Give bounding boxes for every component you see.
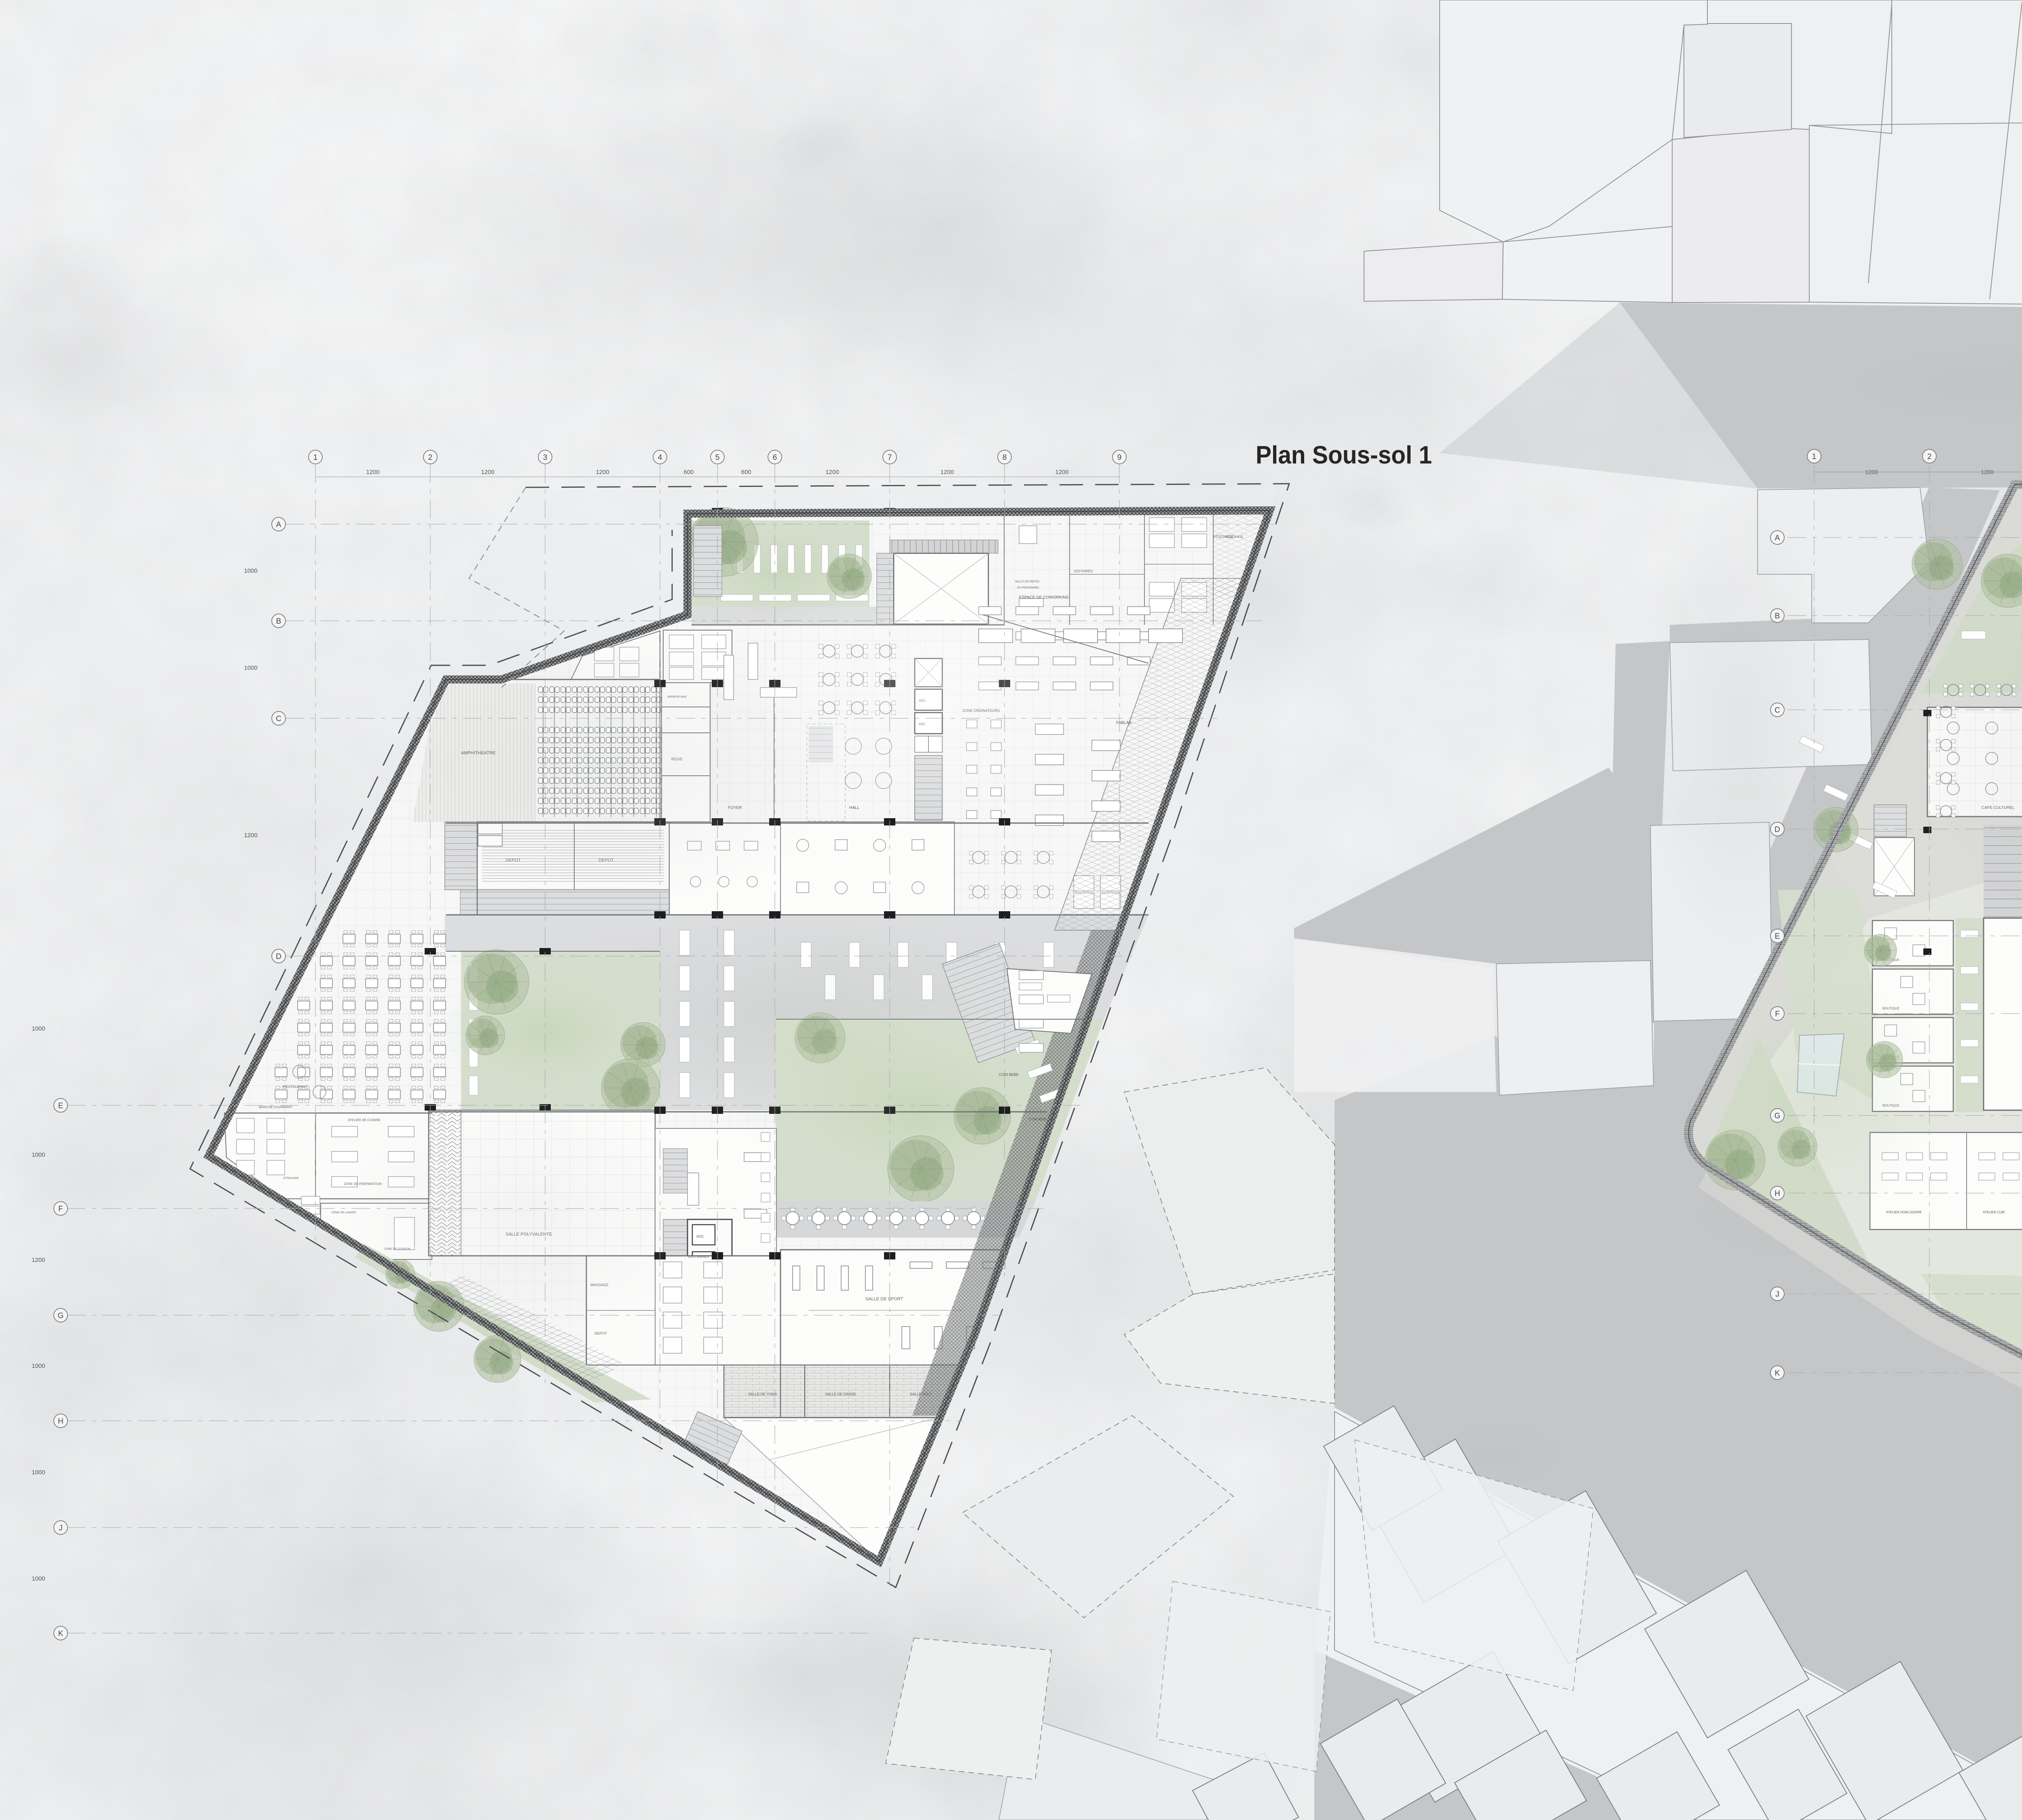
- svg-text:1200: 1200: [366, 469, 379, 476]
- svg-text:6: 6: [773, 453, 777, 462]
- svg-text:4: 4: [658, 453, 662, 462]
- svg-text:Plan Sous-sol 1: Plan Sous-sol 1: [1256, 441, 1432, 469]
- svg-text:9: 9: [1117, 453, 1122, 462]
- svg-text:VESTIAIRES: VESTIAIRES: [1074, 569, 1093, 573]
- svg-text:E: E: [1775, 932, 1780, 941]
- svg-text:A: A: [276, 521, 281, 529]
- svg-text:1: 1: [1812, 453, 1817, 461]
- svg-text:C: C: [276, 715, 281, 723]
- svg-text:SALLE DE YOGA: SALLE DE YOGA: [748, 1392, 777, 1396]
- svg-text:H: H: [1775, 1189, 1780, 1198]
- svg-text:C: C: [1775, 706, 1780, 715]
- svg-text:HALL: HALL: [849, 806, 859, 810]
- svg-text:1200: 1200: [244, 832, 257, 839]
- svg-text:B: B: [1775, 612, 1780, 620]
- svg-text:E: E: [58, 1102, 63, 1110]
- svg-text:STOCKAGE: STOCKAGE: [283, 1177, 299, 1180]
- svg-text:RESTAURANT: RESTAURANT: [283, 1085, 308, 1089]
- svg-text:7: 7: [888, 453, 892, 462]
- svg-text:1200: 1200: [596, 469, 609, 476]
- svg-text:STOCKAGE: STOCKAGE: [1213, 535, 1233, 539]
- svg-text:A: A: [1775, 534, 1780, 542]
- svg-text:J: J: [59, 1524, 63, 1532]
- svg-text:G: G: [1775, 1112, 1781, 1120]
- svg-text:600: 600: [741, 469, 751, 476]
- svg-text:ATELIER CUIR: ATELIER CUIR: [1983, 1211, 2005, 1214]
- svg-text:MARCHE GOURMANT: MARCHE GOURMANT: [259, 1105, 293, 1109]
- svg-text:600: 600: [683, 469, 694, 476]
- svg-text:1200: 1200: [1055, 469, 1068, 476]
- svg-text:SALLE DE SPORT: SALLE DE SPORT: [865, 1297, 903, 1302]
- svg-text:J: J: [1775, 1290, 1779, 1299]
- svg-text:DEPOT: DEPOT: [594, 1331, 607, 1335]
- svg-text:K: K: [58, 1630, 63, 1638]
- svg-text:1200: 1200: [481, 469, 494, 476]
- svg-text:1000: 1000: [32, 1575, 45, 1582]
- svg-text:2: 2: [428, 453, 433, 462]
- svg-text:ATELIER HORLOGERIE: ATELIER HORLOGERIE: [1886, 1211, 1922, 1214]
- svg-text:B: B: [276, 617, 281, 626]
- svg-text:1000: 1000: [32, 1025, 45, 1032]
- svg-text:F: F: [1775, 1010, 1780, 1018]
- svg-text:SALLE DE DANSE: SALLE DE DANSE: [825, 1392, 856, 1396]
- svg-text:1000: 1000: [32, 1363, 45, 1369]
- svg-text:H: H: [58, 1417, 63, 1426]
- svg-text:1000: 1000: [244, 665, 257, 671]
- svg-text:1000: 1000: [32, 1151, 45, 1158]
- svg-text:K: K: [1775, 1369, 1780, 1378]
- svg-text:1200: 1200: [32, 1257, 45, 1263]
- svg-text:D: D: [276, 952, 281, 961]
- svg-text:2: 2: [1927, 453, 1932, 461]
- svg-text:COIN BEBE: COIN BEBE: [1029, 1117, 1047, 1121]
- svg-text:ATELIER DE CUISINE: ATELIER DE CUISINE: [348, 1118, 381, 1122]
- svg-text:1200: 1200: [940, 469, 954, 476]
- svg-text:5: 5: [715, 453, 720, 462]
- svg-text:D: D: [1775, 825, 1780, 834]
- svg-text:1000: 1000: [244, 567, 257, 574]
- svg-text:1000: 1000: [32, 1469, 45, 1476]
- svg-text:1: 1: [313, 453, 318, 462]
- svg-text:1200: 1200: [825, 469, 839, 476]
- svg-text:G: G: [58, 1312, 64, 1320]
- svg-text:8: 8: [1003, 453, 1007, 462]
- svg-text:3: 3: [543, 453, 548, 462]
- svg-text:F: F: [58, 1205, 63, 1213]
